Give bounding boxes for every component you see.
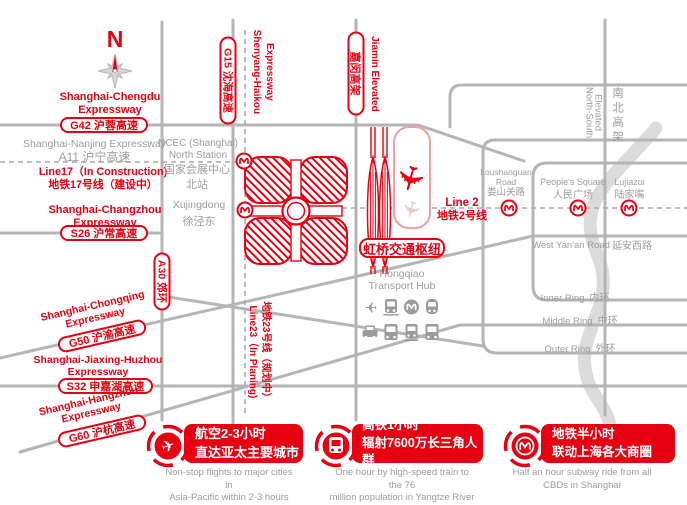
legend-flight-banner: 航空2-3小时 直达亚太主要城市 — [184, 424, 303, 463]
legend-flight-caption: Non-stop flights to major cities in Asia… — [163, 467, 295, 505]
nanbei-gaojia-label: 南北高架 — [609, 87, 625, 145]
shenyang-haikou-expressway-label-line1: Shenyang-Haikou — [250, 26, 262, 118]
west-yanan-road-en-label: West Yan'an Road — [527, 240, 615, 251]
g42-badge: G42 沪蓉高速 — [60, 117, 148, 133]
shanghai-chengdu-expressway-label: Shanghai-Chengdu Expressway — [38, 91, 182, 117]
plane-icon: ✈ — [365, 299, 378, 317]
ncec-north-station-en-label: NCEC (Shanghai) North Station — [150, 138, 246, 162]
ncec-clover-building-icon — [245, 157, 347, 264]
legend-train-banner: 高铁1小时 辐射7600万长三角人群 — [352, 424, 483, 463]
middle-ring-label: Middle Ring 中环 — [534, 312, 626, 327]
compass-rose-icon — [98, 54, 132, 88]
hongqiao-transport-map: ✈ — [0, 0, 687, 505]
jiamin-elevated-badge: 嘉闵高架 — [348, 32, 365, 116]
legend-airplane-icon: ✈ — [149, 427, 188, 466]
west-yanan-road-zh-label: 延安西路 — [609, 241, 655, 253]
north-south-elevated-label-line2: Elevated — [592, 91, 603, 135]
coach-icon — [426, 324, 439, 340]
legend-train-caption: One hour by high-speed train to the 76 m… — [328, 467, 476, 505]
legend-train-icon — [317, 427, 356, 466]
xujingdong-station-label: Xujingdong 徐泾东 — [151, 198, 247, 230]
bus-icon — [385, 324, 398, 340]
metro-icon — [404, 300, 419, 315]
jiamin-elevated-label: Jiamin Elevated — [368, 33, 380, 115]
lujiazui-station-label: Lujiazui 陆家嘴 — [601, 176, 658, 203]
loushanguan-road-station-label: Loushanguan Road 娄山关路 — [477, 167, 535, 198]
line23-label-line2: 地铁23号线（规划中） — [259, 297, 271, 407]
train-icon — [384, 299, 399, 316]
legend-metro-banner: 地铁半小时 联动上海各大商圈 — [541, 424, 675, 463]
line2-label: Line 2 地铁2号线 — [430, 196, 494, 224]
shanghai-jiaxing-huzhou-expressway-label: Shanghai-Jiaxing-Huzhou Expressway — [26, 354, 170, 379]
metro-station-icon — [502, 201, 517, 216]
compass-north-label: N — [103, 26, 127, 53]
shenyang-haikou-expressway-label-line2: Expressway — [263, 41, 275, 103]
hongqiao-hub-badge: 虹桥交通枢纽 — [359, 238, 445, 258]
hongqiao-hub-name-label: Hongqiao Transport Hub — [363, 268, 441, 293]
metro-station-icon — [571, 201, 586, 216]
hub-transport-icons: ✈ — [363, 299, 439, 341]
legend-metro-caption: Half an hour subway ride from all CBDs i… — [508, 467, 656, 492]
line23-label-line1: Line23（In Planing) — [246, 299, 258, 405]
legend-metro-icon — [506, 427, 545, 466]
road-north — [450, 85, 687, 127]
inner-ring-label: Inner Ring 内环 — [536, 289, 614, 304]
maglev-icon — [426, 299, 438, 314]
ncec-north-station-zh-label: 国家会展中心 北站 — [152, 163, 242, 193]
g15-badge: G15 沈海高速 — [220, 37, 237, 125]
huangpu-river — [584, 128, 656, 425]
outer-ring-label: Outer Ring 外环 — [534, 340, 626, 355]
s26-badge: S26 沪常高速 — [60, 225, 148, 241]
metro-station-icon — [622, 201, 637, 216]
